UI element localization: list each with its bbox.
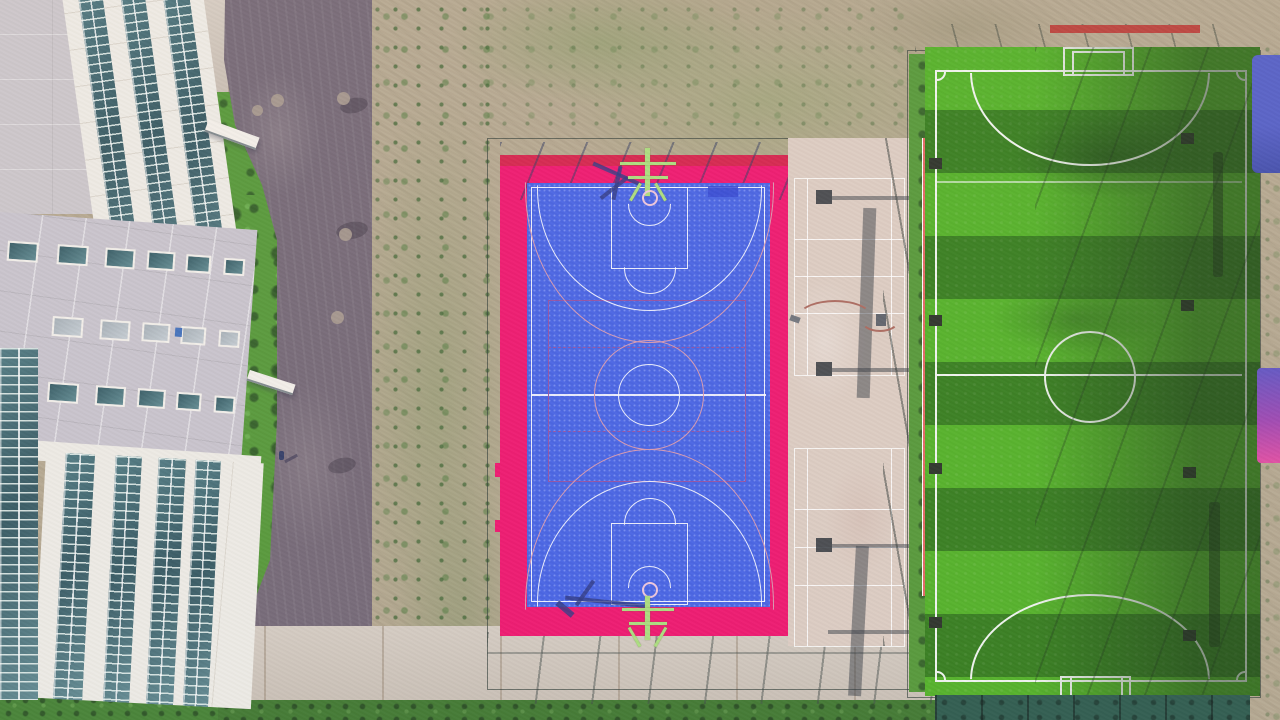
basketball-surface <box>527 183 770 607</box>
hoop-arm <box>622 608 674 611</box>
window <box>99 319 130 341</box>
pink-marker <box>495 463 500 477</box>
facade-glass-strip <box>146 458 186 705</box>
fence-shadow-overlay <box>1035 47 1260 696</box>
building-facade-band <box>0 212 257 467</box>
red-barrier-top <box>1050 25 1200 33</box>
hoop-ring-top <box>642 190 658 206</box>
light-pole-base-shadow <box>816 190 832 204</box>
window <box>7 241 39 263</box>
pitch-turf <box>925 47 1260 696</box>
backboard-mat <box>708 186 738 197</box>
manhole <box>337 92 350 105</box>
hoop-arm <box>629 622 667 625</box>
window <box>141 322 170 343</box>
floodlight-base <box>929 617 942 628</box>
window <box>104 247 135 269</box>
floodlight-base <box>929 158 942 169</box>
football-complex <box>905 18 1280 720</box>
window <box>214 395 236 413</box>
manhole <box>331 311 344 324</box>
window <box>218 330 240 348</box>
window <box>223 258 245 276</box>
court-line <box>807 179 808 375</box>
pedestrian <box>279 451 284 460</box>
hedge-below-pitch <box>935 695 1250 720</box>
window <box>137 388 166 409</box>
pink-marker <box>495 520 500 532</box>
corner-arc <box>928 63 946 81</box>
window <box>180 326 206 346</box>
aerial-photo-stage <box>0 0 1280 720</box>
window <box>51 316 83 338</box>
manhole <box>252 105 263 116</box>
facade-glass-strip <box>103 456 142 703</box>
scrub-strip-top <box>470 0 910 140</box>
canopy-pink <box>1257 368 1280 463</box>
facade-sign <box>175 328 183 337</box>
window <box>95 385 126 407</box>
hoop-arm <box>620 162 676 165</box>
badminton-strip <box>788 138 909 646</box>
floodlight-base <box>929 463 942 474</box>
center-circle <box>618 364 680 426</box>
hose-reel <box>876 314 886 326</box>
hoop-arm <box>628 176 668 179</box>
building-lower-facade <box>33 452 264 709</box>
window <box>185 254 211 274</box>
hoop-pole-bottom <box>645 596 650 640</box>
window <box>176 392 202 412</box>
facade-glass-strip <box>53 453 95 700</box>
floodlight-base <box>929 315 942 326</box>
window <box>146 250 175 271</box>
hoop-pole-top <box>645 148 650 196</box>
window <box>47 382 79 404</box>
light-pole-base-shadow <box>816 538 832 552</box>
manhole <box>271 94 284 107</box>
atrium-glass-roof <box>0 348 38 700</box>
canopy-blue <box>1252 55 1280 173</box>
light-pole-base-shadow <box>816 362 832 376</box>
manhole <box>339 228 352 241</box>
facade-glass-strip <box>183 460 221 707</box>
window <box>57 244 89 266</box>
